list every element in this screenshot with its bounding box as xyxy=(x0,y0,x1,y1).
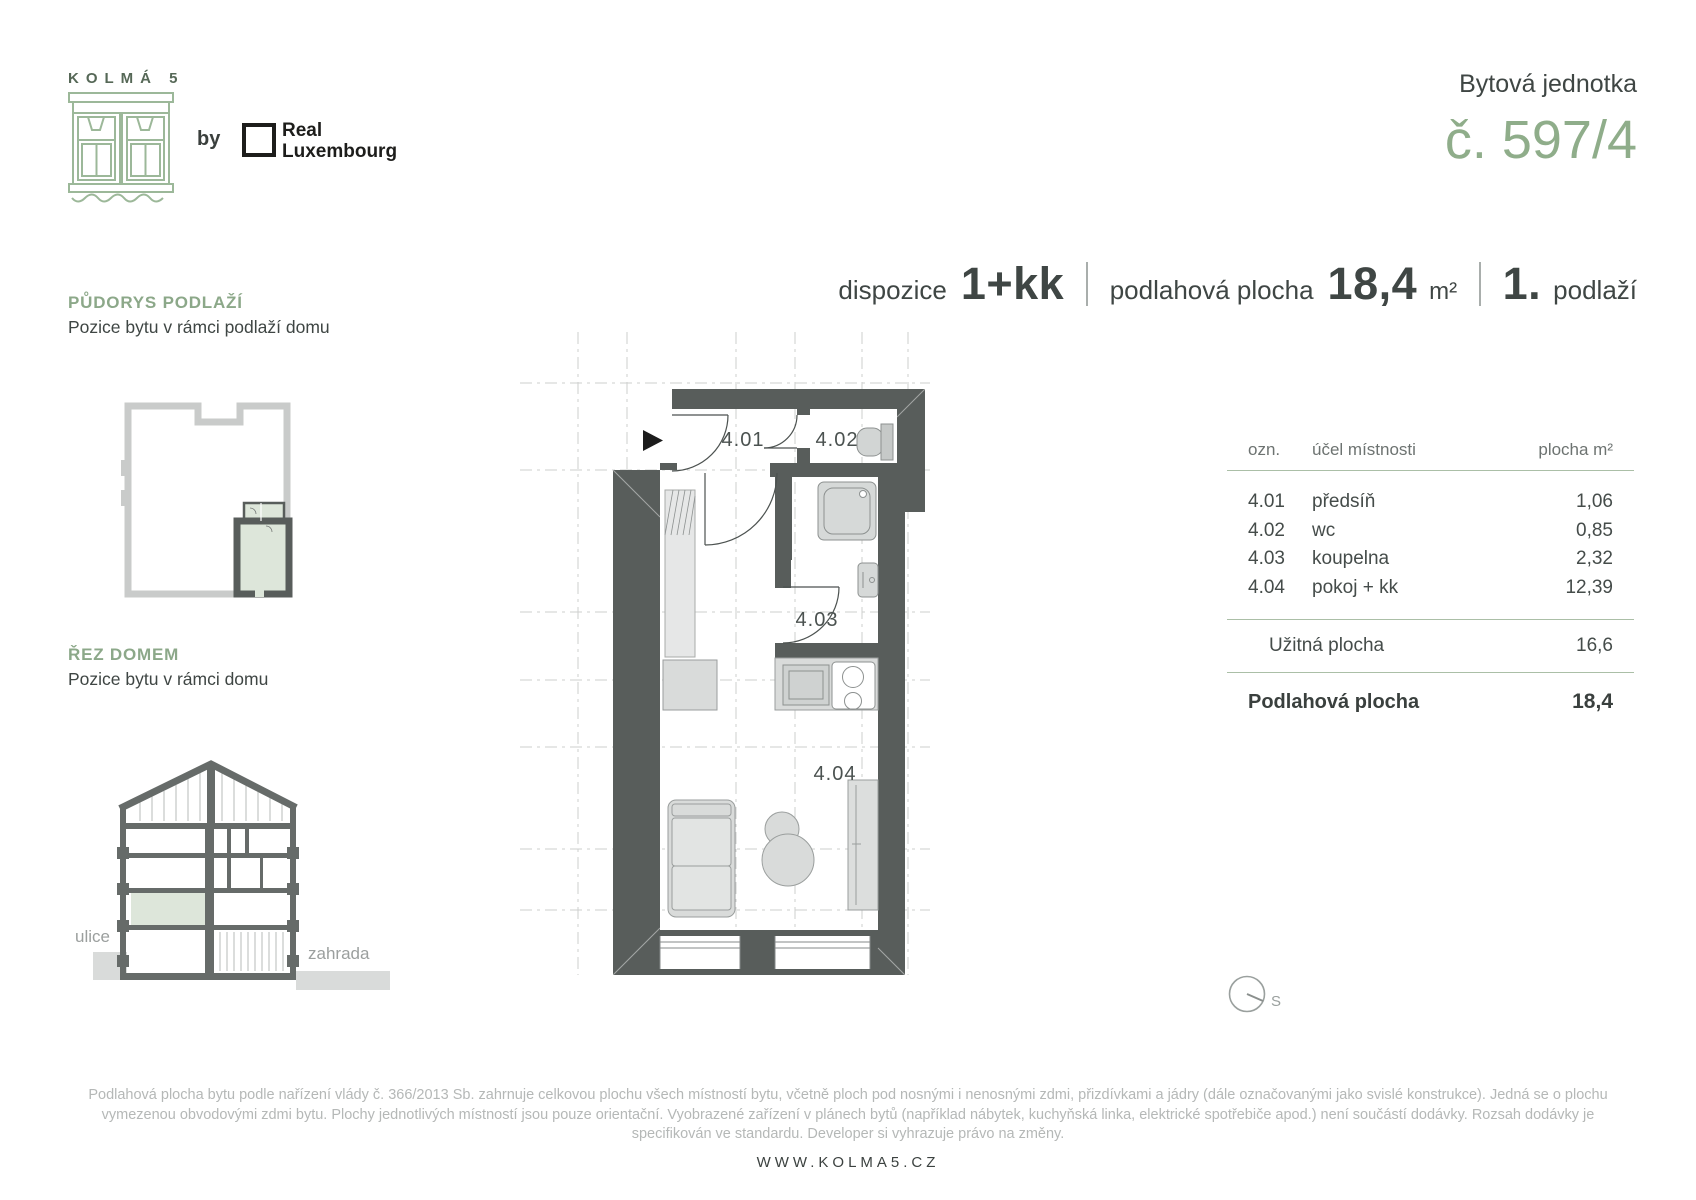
spec-divider xyxy=(1086,262,1088,306)
unit-label: Bytová jednotka xyxy=(1445,70,1637,99)
wardrobe xyxy=(848,780,878,910)
bath-bottom-wall xyxy=(775,643,905,658)
table-row: 4.01 předsíň 1,06 xyxy=(1227,491,1634,520)
logo-cornice xyxy=(69,93,173,102)
washbasin xyxy=(858,563,878,597)
unit-header: Bytová jednotka č. 597/4 xyxy=(1445,70,1637,171)
row-id: 4.02 xyxy=(1227,520,1312,542)
mini-floorplan-diagram xyxy=(98,360,308,605)
unit-number: č. 597/4 xyxy=(1445,109,1637,171)
floor-label: podlaží xyxy=(1553,275,1637,306)
left-wall xyxy=(613,470,660,975)
garden-label: zahrada xyxy=(308,944,369,964)
real-luxembourg-logo-icon xyxy=(242,123,276,157)
house-section-subtitle: Pozice bytu v rámci domu xyxy=(68,669,268,690)
top-wall xyxy=(672,389,925,409)
row-area: 0,85 xyxy=(1523,520,1634,542)
row-area: 12,39 xyxy=(1523,577,1634,599)
wc-door-arc xyxy=(764,415,797,448)
compass-label: S xyxy=(1271,993,1281,1010)
unit-door-notch xyxy=(255,590,264,597)
by-label: by xyxy=(197,128,220,151)
row-purpose: předsíň xyxy=(1312,491,1523,513)
kitchenette xyxy=(775,658,878,710)
room-table: ozn. účel místnosti plocha m² 4.01 předs… xyxy=(1227,440,1634,714)
usable-area-row: Užitná plocha 16,6 xyxy=(1227,620,1634,672)
house-section-title: ŘEZ DOMEM xyxy=(68,645,179,665)
usable-value: 16,6 xyxy=(1523,635,1634,657)
kolma5-window-logo xyxy=(68,92,174,208)
floorplan-sheet: KOLMÁ 5 by Real Luxembourg xyxy=(0,0,1696,1200)
layout-value: 1+kk xyxy=(961,258,1064,310)
main-floor-plan: 4.01 4.02 4.03 4.04 xyxy=(515,320,935,980)
row-id: 4.03 xyxy=(1227,548,1312,570)
table xyxy=(762,834,814,886)
total-value: 18,4 xyxy=(1523,690,1634,714)
highlighted-unit xyxy=(237,503,289,597)
bath-left-wall xyxy=(775,477,792,560)
street-label: ulice xyxy=(75,927,110,947)
compass-icon: S xyxy=(1225,972,1305,1027)
floor-position-subtitle: Pozice bytu v rámci podlaží domu xyxy=(68,317,330,338)
header-ozn: ozn. xyxy=(1227,440,1312,460)
shower xyxy=(818,482,876,540)
logo-sill-wave xyxy=(72,195,163,202)
spec-divider xyxy=(1479,262,1481,306)
table-header-row: ozn. účel místnosti plocha m² xyxy=(1227,440,1634,460)
right-wall xyxy=(878,477,905,975)
real-luxembourg-name: Real Luxembourg xyxy=(282,120,397,162)
wc-bath-slab xyxy=(770,463,905,477)
toilet xyxy=(857,424,893,460)
facade-bay xyxy=(121,460,130,476)
floor-position-title: PŮDORYS PODLAŽÍ xyxy=(68,293,243,313)
hall-door-arc xyxy=(705,473,777,545)
table-row: 4.04 pokoj + kk 12,39 xyxy=(1227,577,1634,606)
header-purpose: účel místnosti xyxy=(1312,440,1523,460)
floor-value: 1. xyxy=(1503,258,1542,310)
room-label-404: 4.04 xyxy=(814,763,857,785)
sofa xyxy=(668,800,735,917)
spec-bar: dispozice 1+kk podlahová plocha 18,4 m² … xyxy=(838,258,1637,310)
website-text: WWW.KOLMA5.CZ xyxy=(0,1154,1696,1171)
table-row: 4.03 koupelna 2,32 xyxy=(1227,548,1634,577)
entrance-door-arc xyxy=(672,415,728,471)
area-label: podlahová plocha xyxy=(1110,275,1314,306)
header-area: plocha m² xyxy=(1523,440,1634,460)
area-value: 18,4 xyxy=(1328,258,1418,310)
row-purpose: pokoj + kk xyxy=(1312,577,1523,599)
row-purpose: koupelna xyxy=(1312,548,1523,570)
real-luxembourg-line1: Real xyxy=(282,120,397,141)
layout-label: dispozice xyxy=(838,275,946,306)
facade-bay xyxy=(121,490,130,506)
row-id: 4.04 xyxy=(1227,577,1312,599)
row-id: 4.01 xyxy=(1227,491,1312,513)
room-label-402: 4.02 xyxy=(816,429,859,451)
stair-lines xyxy=(220,932,283,971)
room-label-401: 4.01 xyxy=(722,429,765,451)
entrance-arrow-icon xyxy=(643,430,663,451)
shaft xyxy=(663,490,717,710)
row-area: 1,06 xyxy=(1523,491,1634,513)
table-rows: 4.01 předsíň 1,06 4.02 wc 0,85 4.03 koup… xyxy=(1227,471,1634,619)
total-label: Podlahová plocha xyxy=(1227,691,1523,714)
room-label-403: 4.03 xyxy=(796,609,839,631)
real-luxembourg-line2: Luxembourg xyxy=(282,141,397,162)
disclaimer-text: Podlahová plocha bytu podle nařízení vlá… xyxy=(85,1086,1611,1145)
highlighted-flat-level xyxy=(131,893,206,925)
garden-ground xyxy=(296,971,390,990)
row-area: 2,32 xyxy=(1523,548,1634,570)
total-area-row: Podlahová plocha 18,4 xyxy=(1227,673,1634,714)
row-purpose: wc xyxy=(1312,520,1523,542)
area-unit: m² xyxy=(1429,278,1457,306)
usable-label: Užitná plocha xyxy=(1248,635,1523,657)
kolma5-logo-title: KOLMÁ 5 xyxy=(68,70,185,87)
table-row: 4.02 wc 0,85 xyxy=(1227,520,1634,549)
